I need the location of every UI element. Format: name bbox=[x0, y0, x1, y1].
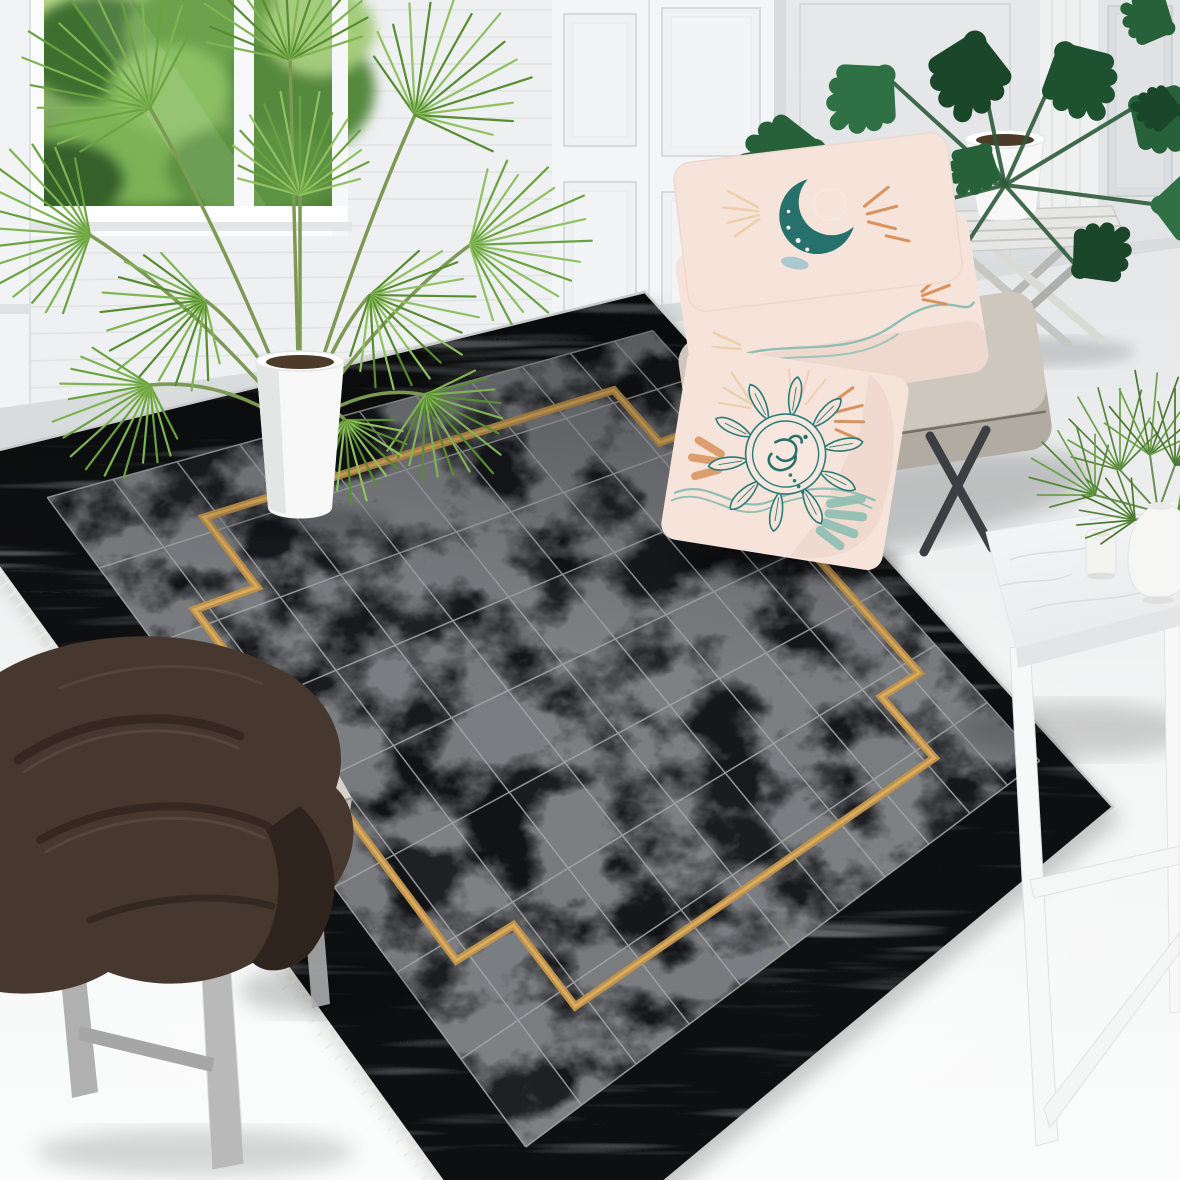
monstera-leaf bbox=[1051, 41, 1109, 112]
monstera-leaf-base bbox=[1071, 261, 1089, 279]
monstera-leaf-base bbox=[874, 64, 895, 85]
monstera-leaf-base bbox=[1151, 196, 1170, 215]
monstera-leaf-base bbox=[978, 143, 993, 158]
monstera-leaf-base bbox=[1161, 21, 1176, 36]
stool-floor-shadow bbox=[35, 1128, 355, 1176]
monstera-leaf bbox=[1071, 230, 1124, 279]
palm-pot bbox=[256, 351, 344, 519]
blanket-rug-shadow bbox=[240, 964, 420, 1016]
leaning-cushion bbox=[659, 344, 911, 573]
monstera-leaf-base bbox=[1054, 41, 1076, 63]
monstera-leaf bbox=[835, 64, 896, 125]
monstera-leaf-base bbox=[963, 30, 986, 53]
left-pillar bbox=[0, 0, 30, 468]
monstera-leaf bbox=[955, 143, 994, 190]
scene-canvas: Product photo: black marble-tile area ru… bbox=[0, 0, 1180, 1180]
palm-frond-blade bbox=[60, 384, 150, 385]
blanket bbox=[0, 636, 353, 993]
product-photo-rug-room: Product photo: black marble-tile area ru… bbox=[0, 0, 1180, 1180]
